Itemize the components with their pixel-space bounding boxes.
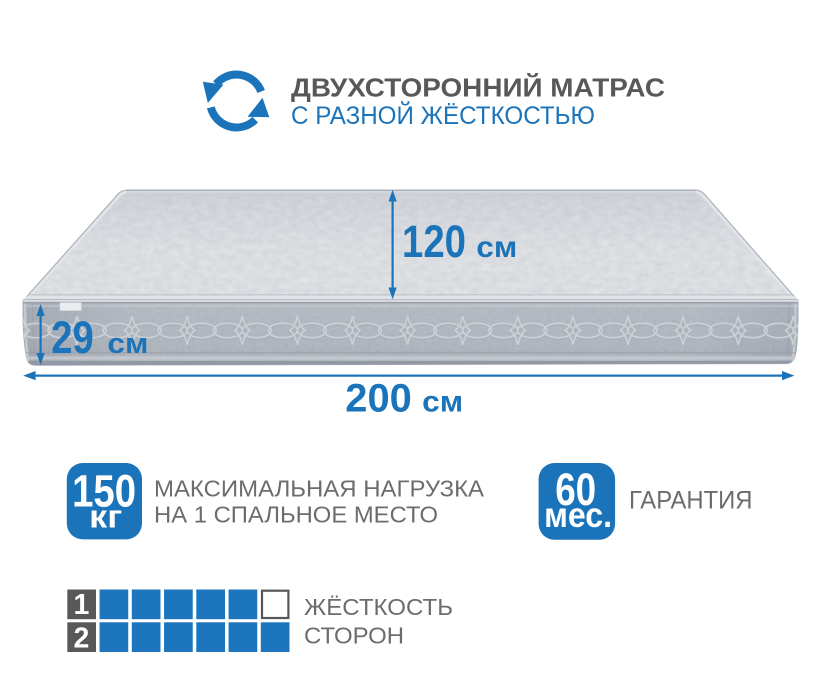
svg-text:200: 200: [345, 377, 412, 421]
svg-text:2: 2: [73, 622, 89, 654]
svg-text:НА 1 СПАЛЬНОЕ МЕСТО: НА 1 СПАЛЬНОЕ МЕСТО: [154, 501, 438, 527]
svg-text:1: 1: [73, 589, 89, 621]
svg-text:СТОРОН: СТОРОН: [304, 622, 404, 648]
svg-text:см: см: [476, 231, 517, 264]
svg-text:120: 120: [402, 216, 466, 267]
svg-text:С РАЗНОЙ ЖЁСТКОСТЬЮ: С РАЗНОЙ ЖЁСТКОСТЬЮ: [291, 100, 595, 130]
svg-text:кг: кг: [89, 499, 122, 535]
svg-text:ЖЁСТКОСТЬ: ЖЁСТКОСТЬ: [304, 594, 453, 620]
svg-text:МАКСИМАЛЬНАЯ НАГРУЗКА: МАКСИМАЛЬНАЯ НАГРУЗКА: [154, 476, 485, 502]
svg-text:29: 29: [51, 312, 94, 363]
svg-text:ГАРАНТИЯ: ГАРАНТИЯ: [629, 486, 753, 514]
svg-text:см: см: [422, 386, 463, 419]
svg-text:см: см: [107, 328, 148, 360]
svg-text:мес.: мес.: [544, 496, 612, 535]
svg-text:ДВУХСТОРОННИЙ МАТРАС: ДВУХСТОРОННИЙ МАТРАС: [291, 72, 665, 102]
